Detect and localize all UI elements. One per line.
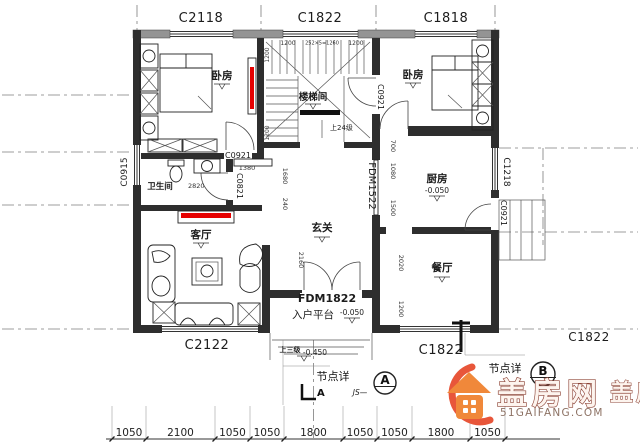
window-c2122 [162,327,258,332]
label-c1822-right: C1822 [568,330,609,344]
dim-bottom-3: 1050 [219,427,246,439]
room-platform: 入户平台 [292,308,334,321]
logo-house-body [456,395,483,419]
window-c1218 [493,148,498,190]
logo-site: 51GAIFANG.COM [500,407,604,419]
bathroom-door [201,173,228,200]
dim-stair-top-2: 252×5=1260 [305,41,339,47]
sink-counter [194,159,220,173]
dim-stair-side-1: 1200 [264,47,271,62]
floor-plan: C2118 C1822 C1818 C0915 C2122 C1822 C182… [0,0,640,443]
dim-bath: 2820 [188,182,205,190]
window-c1822-top [283,32,358,37]
dim-kitchen-2: 1080 [389,163,397,180]
toilet-tank [168,160,184,166]
room-living: 客厅 [190,228,212,241]
staircase-treads [266,40,370,142]
window-c0915 [135,145,140,185]
window-c2118 [170,32,233,37]
detail-b-ref: B [538,364,547,378]
dim-bottom-9: 1050 [474,427,501,439]
dim-bottom-4: 1050 [254,427,281,439]
label-c2118: C2118 [179,11,224,26]
bedroom-right-furniture [432,40,493,130]
dim-hall-1: 1680 [281,168,289,185]
label-kitchen-door: C0921 [499,200,508,226]
note-steps-up: 上三级 [280,345,302,354]
detail-b-label: 节点详 [489,361,522,375]
dim-kitchen-1: 700 [389,140,397,152]
detail-a-label: 节点详 [317,369,350,383]
label-stair-door: C0921 [376,84,385,110]
elev-kitchen: -0.050 [425,186,449,195]
dim-bottom-5: 1800 [300,427,327,439]
dim-kitchen-3: 1500 [389,200,397,217]
logo-brand-corner: 盖房网 [610,379,640,406]
sofa-plant [152,251,170,263]
detail-a-ref: A [380,373,390,387]
elev-platform: -0.050 [340,308,364,317]
label-c2122: C2122 [185,338,230,353]
dim-shelf: 1380 [239,164,256,172]
room-dining: 餐厅 [431,261,453,274]
label-entry-inner-door: FDM1522 [366,162,377,210]
floor-plan-drawing: C2118 C1822 C1818 C0915 C2122 C1822 C182… [0,0,640,443]
dim-stair-top-3: 1200 [348,40,363,47]
label-c1818: C1818 [424,11,469,26]
note-stair-up: 上24级 [330,123,353,132]
dim-bottom-1: 1050 [116,427,143,439]
dim-bottom-7: 1050 [381,427,408,439]
label-bath-door: C0821 [235,173,244,199]
toilet-bowl [170,166,182,182]
detail-a: 节点详 A JS— A [317,369,397,399]
tv-living-red [181,213,231,218]
tv-screen-red [250,67,254,109]
kitchen-exterior-door [465,204,491,230]
dim-hall-3: 2160 [297,252,305,269]
dim-bottom-6: 1050 [347,427,374,439]
label-bedroom1-door: C0921 [225,151,251,160]
dim-bottom-2: 2100 [167,427,194,439]
round-chair [240,264,260,293]
dim-dining-2: 1200 [397,301,405,318]
window-c1818 [415,32,477,37]
detail-a-sheet: JS— [351,388,368,397]
bottom-dimension-chain: 1050 2100 1050 1050 1800 1050 1050 1800 … [106,406,560,442]
dim-stair-side-2: 1200 [264,125,271,140]
label-c1218: C1218 [501,157,511,186]
sink-basin [202,161,213,172]
room-entry-hall: 玄关 [312,221,333,234]
stairwell-edge [300,110,340,115]
section-letter: A [317,388,325,399]
label-c1822-bottom: C1822 [419,343,464,358]
label-c0915: C0915 [120,157,130,186]
label-main-door: FDM1822 [298,292,356,305]
room-bedroom-right: 卧房 [403,68,424,81]
stair-door [348,78,376,106]
dim-dining-1: 2020 [397,255,405,272]
main-entry-double-door [304,262,360,290]
bedroom-left-furniture [140,44,256,152]
dim-hall-2: 240 [281,198,289,210]
bathroom-fixtures [168,159,272,182]
room-kitchen: 厨房 [427,172,448,185]
fan-chair [240,244,263,267]
dim-stair-top-1: 1200 [280,40,295,47]
sofa-main [175,303,233,325]
label-main-door-group: FDM1822 [298,292,356,305]
wardrobe-right [472,40,493,130]
room-staircase: 楼梯间 [299,91,328,103]
bedroom-left-door [226,122,254,150]
dim-bottom-8: 1800 [428,427,455,439]
room-bedroom-left: 卧房 [212,69,233,82]
room-bathroom: 卫生间 [147,181,173,192]
label-c1822-top: C1822 [298,11,343,26]
